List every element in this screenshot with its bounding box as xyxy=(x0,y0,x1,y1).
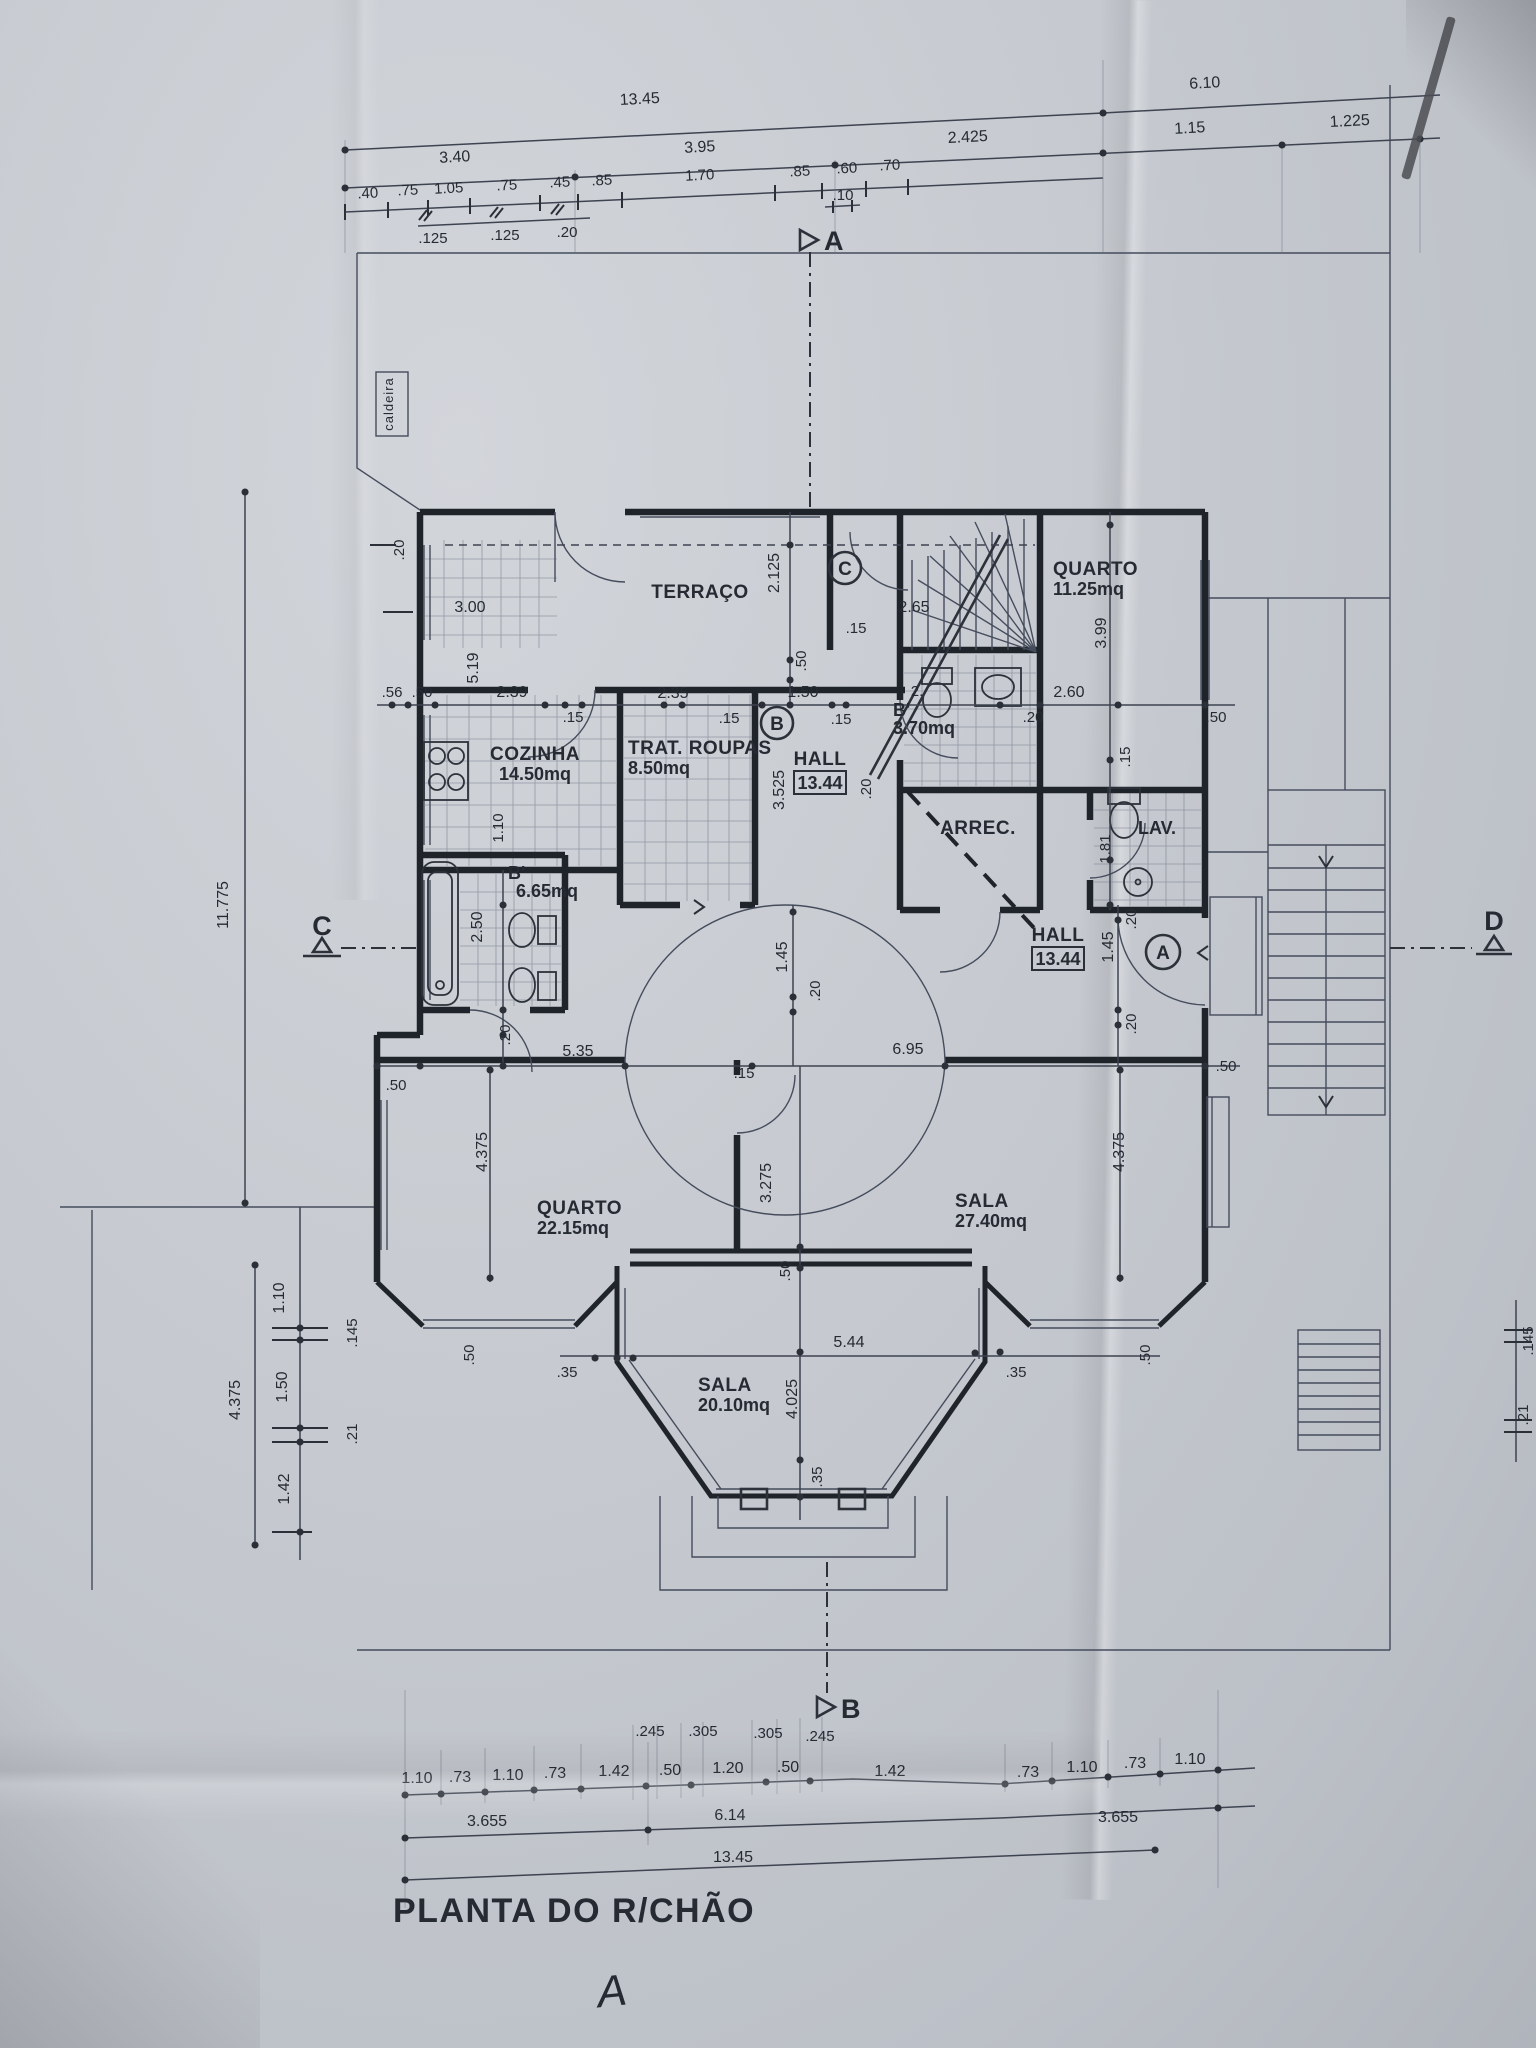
dim-label: .75 xyxy=(496,176,518,194)
exterior-stair-upper xyxy=(1268,790,1385,1115)
dim-label: 6.14 xyxy=(714,1807,745,1824)
dim-label: .245 xyxy=(635,1723,664,1740)
dim-label: 1.05 xyxy=(434,179,464,198)
dim-label: 1.81 xyxy=(1097,834,1114,863)
dim-label: 1.45 xyxy=(1100,931,1117,962)
room-area-bath2: 6.65mq xyxy=(516,881,578,901)
dim-label: .20 xyxy=(1023,709,1044,726)
dim-label: .15 xyxy=(831,711,852,728)
toilet xyxy=(1110,802,1138,838)
dim-label: .245 xyxy=(805,1728,834,1745)
dim-label: 4.375 xyxy=(474,1132,491,1172)
room-label-hall-lower: HALL xyxy=(1032,925,1085,946)
dim-label: 13.45 xyxy=(713,1849,753,1866)
dim-label: 1.10 xyxy=(271,1282,288,1313)
dim-label: 11.775 xyxy=(215,881,232,929)
dim-label: 1.10 xyxy=(490,813,507,842)
dim-label: .145 xyxy=(344,1318,361,1347)
dim-label: 4.375 xyxy=(227,1380,244,1420)
dimension-labels-lower-zone: 4.375 3.275 .50 4.375 .50 .50 .35 .35 5.… xyxy=(461,1132,1154,1488)
dim-label: .35 xyxy=(1006,1364,1027,1381)
dim-label: .50 xyxy=(1137,1345,1154,1366)
dim-label: 2.50 xyxy=(469,911,486,942)
room-area-quarto1: 11.25mq xyxy=(1053,579,1124,599)
dim-label: .20 xyxy=(1123,909,1140,930)
dim-label: .21 xyxy=(1515,1405,1532,1426)
section-b-label: B xyxy=(841,1694,861,1724)
bubble-a-label: A xyxy=(1156,943,1170,964)
site-boundary xyxy=(60,85,1390,1650)
dim-label: .40 xyxy=(357,184,379,202)
dim-label: .145 xyxy=(1520,1326,1536,1355)
dim-label: .21 xyxy=(344,1424,361,1445)
dim-label: .73 xyxy=(544,1765,566,1782)
dim-label: .50 xyxy=(386,1077,407,1094)
handwritten-note: A xyxy=(592,1966,629,2018)
dim-label: .20 xyxy=(1123,1014,1140,1035)
dim-label: 1.50 xyxy=(274,1371,291,1402)
room-area-sala1: 27.40mq xyxy=(955,1211,1027,1231)
dim-label: 3.655 xyxy=(1098,1809,1138,1826)
dim-label: .56 xyxy=(382,684,403,701)
room-area-cozinha: 14.50mq xyxy=(499,764,571,784)
dim-label: .20 xyxy=(557,224,578,241)
dim-label: 2.39 xyxy=(496,684,527,701)
section-a-label: A xyxy=(824,226,844,256)
dim-label: .125 xyxy=(490,227,519,244)
dim-label: .75 xyxy=(397,181,419,199)
dim-label: 4.025 xyxy=(784,1379,801,1419)
bidet xyxy=(509,913,535,947)
section-d-label: D xyxy=(1484,906,1504,936)
dim-label: .35 xyxy=(809,1467,826,1488)
interior-stair xyxy=(870,514,1036,779)
dim-label: 1.42 xyxy=(276,1473,293,1504)
dim-label: .50 xyxy=(777,1759,799,1776)
dim-label: 3.99 xyxy=(1093,617,1110,648)
room-area-hall-lower: 13.44 xyxy=(1035,949,1080,969)
dim-label: .70 xyxy=(879,156,901,174)
dim-label: 6.10 xyxy=(1189,74,1221,93)
dim-label: .73 xyxy=(1124,1755,1146,1772)
dim-label: .50 xyxy=(1206,709,1227,726)
dim-label: 5.35 xyxy=(562,1043,593,1060)
dim-label: .305 xyxy=(753,1725,782,1742)
dim-label: 1.20 xyxy=(712,1760,743,1777)
exterior-stair-lower xyxy=(1298,1330,1380,1450)
dim-label: 6.95 xyxy=(892,1041,923,1058)
dim-label: 3.40 xyxy=(439,148,471,167)
room-label-trat-roupas: TRAT. ROUPAS xyxy=(628,738,772,759)
room-label-caldeira: caldeira xyxy=(381,377,396,431)
dim-label: 3.00 xyxy=(454,599,485,616)
room-label-lav: LAV. xyxy=(1138,818,1176,838)
dim-label: 1.10 xyxy=(401,1770,432,1787)
room-label-quarto1: QUARTO xyxy=(1053,559,1138,580)
dimension-left: 11.775 xyxy=(215,490,245,1205)
dim-label: .20 xyxy=(391,540,408,561)
dim-label: .15 xyxy=(734,1065,755,1082)
dim-label: 2.60 xyxy=(1053,684,1084,701)
room-label-cozinha: COZINHA xyxy=(490,744,580,765)
bubble-b-label: B xyxy=(770,714,784,735)
dim-label: 5.19 xyxy=(465,652,482,683)
room-labels: caldeira TERRAÇO QUARTO 11.25mq COZINHA … xyxy=(381,377,1176,1415)
room-label-sala1: SALA xyxy=(955,1191,1009,1212)
section-markers: A B C D xyxy=(303,226,1512,1724)
bubble-c-label: C xyxy=(838,559,852,580)
room-label-bath1: B' xyxy=(893,700,910,720)
dim-label: 1.225 xyxy=(1329,112,1370,131)
room-label-bath2: B' xyxy=(508,863,525,883)
dim-label: 1.42 xyxy=(874,1763,905,1780)
dim-label: .125 xyxy=(418,230,447,247)
dim-label: 2.65 xyxy=(898,599,929,616)
dim-label: 13.45 xyxy=(619,90,660,109)
dim-label: .50 xyxy=(461,1345,478,1366)
room-label-terraco: TERRAÇO xyxy=(651,582,748,603)
dimension-chain-left-bottom: 1.10 .145 1.50 .21 1.42 4.375 xyxy=(227,1207,361,1560)
dim-label: 3.655 xyxy=(467,1813,507,1830)
dim-label: 3.525 xyxy=(771,770,788,810)
dim-label: .60 xyxy=(836,159,858,177)
dim-label: .10 xyxy=(833,187,854,204)
toilet xyxy=(509,968,535,1002)
dim-label: 2.35 xyxy=(657,685,688,702)
dim-label: .50 xyxy=(793,651,810,672)
floor-plan-photo: 13.45 6.10 3.40 3.95 2.425 1.15 1.225 .4… xyxy=(0,0,1536,2048)
dim-label: .15 xyxy=(846,620,867,637)
dim-label: .85 xyxy=(789,162,811,180)
dim-label: .20 xyxy=(497,1025,514,1046)
dim-label: 3.275 xyxy=(758,1163,775,1203)
dim-label: 4.375 xyxy=(1111,1132,1128,1172)
dim-label: .50 xyxy=(412,684,433,701)
dimension-right-edge: .145 .21 xyxy=(1504,1300,1536,1462)
toilet xyxy=(923,683,951,717)
dim-label: .15 xyxy=(563,709,584,726)
dimension-chain-top: 13.45 6.10 3.40 3.95 2.425 1.15 1.225 .4… xyxy=(345,60,1440,253)
dim-label: 3.95 xyxy=(684,138,716,157)
dim-label: .15 xyxy=(1117,747,1134,768)
dim-label: 1.70 xyxy=(685,166,715,185)
dim-label: .20 xyxy=(807,981,824,1002)
room-area-sala2: 20.10mq xyxy=(698,1395,770,1415)
room-label-sala2: SALA xyxy=(698,1375,752,1396)
dim-label: .305 xyxy=(688,1723,717,1740)
dim-label: 2. xyxy=(911,683,924,700)
dim-label: .45 xyxy=(549,173,571,191)
dim-label: 1.10 xyxy=(1174,1751,1205,1768)
dim-label: 1.50 xyxy=(787,684,818,701)
dim-label: .50 xyxy=(659,1762,681,1779)
dim-label: .50 xyxy=(1216,1058,1237,1075)
bay-terrace-steps xyxy=(660,1489,947,1590)
room-area-quarto2: 22.15mq xyxy=(537,1218,609,1238)
dim-label: .85 xyxy=(591,171,613,189)
room-label-quarto2: QUARTO xyxy=(537,1198,622,1219)
dim-label: 1.42 xyxy=(598,1763,629,1780)
room-label-arrec: ARREC. xyxy=(940,818,1016,839)
dim-label: 1.10 xyxy=(1066,1759,1097,1776)
dim-label: 2.425 xyxy=(947,128,988,147)
room-area-bath1: 3.70mq xyxy=(893,718,955,738)
room-area-hall-upper: 13.44 xyxy=(797,773,842,793)
dim-label: 1.10 xyxy=(492,1767,523,1784)
plan-title: PLANTA DO R/CHÃO xyxy=(393,1892,755,1930)
dim-label: 1.15 xyxy=(1174,119,1206,138)
room-area-trat-roupas: 8.50mq xyxy=(628,758,690,778)
dimension-chain-bottom: .245 .305 .305 .245 1.10 .73 1.10 .73 1.… xyxy=(401,1690,1255,1908)
dim-label: .20 xyxy=(858,779,875,800)
dim-label: .50 xyxy=(777,1261,794,1282)
dim-label: 2.125 xyxy=(766,553,783,593)
dim-label: 1.45 xyxy=(774,941,791,972)
dim-label: .73 xyxy=(449,1769,471,1786)
dim-label: .73 xyxy=(1017,1764,1039,1781)
floor-plan-drawing: 13.45 6.10 3.40 3.95 2.425 1.15 1.225 .4… xyxy=(0,0,1536,2048)
dim-label: .15 xyxy=(719,710,740,727)
dim-label: 5.44 xyxy=(833,1334,864,1351)
dim-label: .35 xyxy=(557,1364,578,1381)
room-label-hall-upper: HALL xyxy=(794,749,847,770)
